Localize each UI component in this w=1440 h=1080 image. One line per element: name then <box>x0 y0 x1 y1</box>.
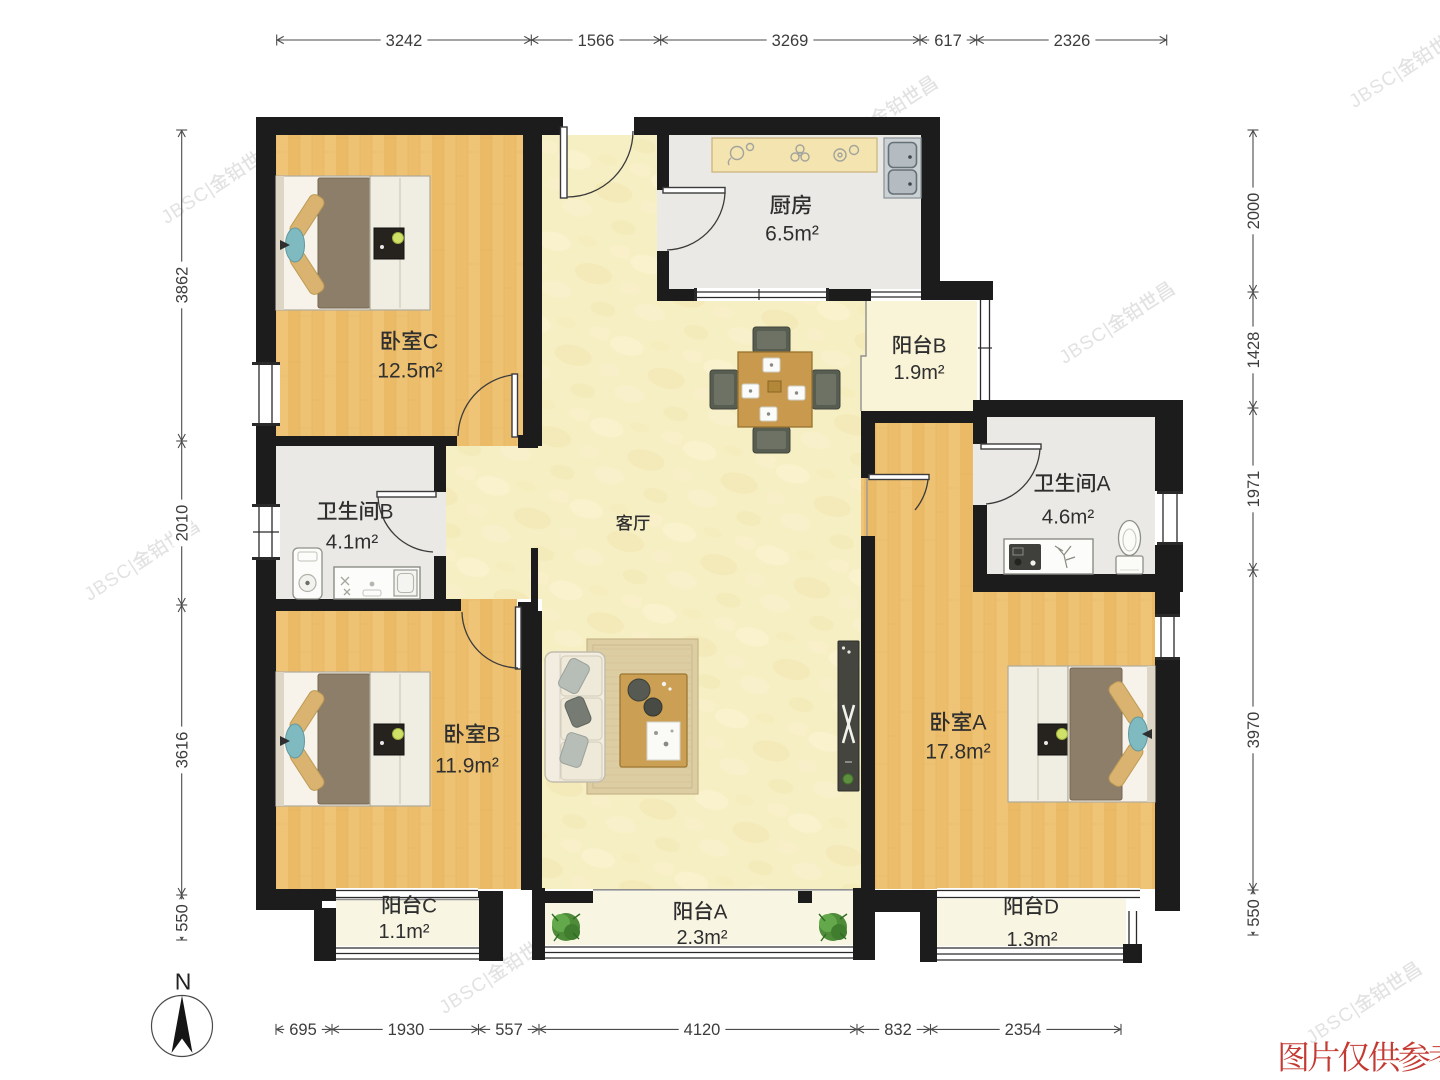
svg-text:B: B <box>380 501 394 524</box>
svg-text:832: 832 <box>884 1021 912 1039</box>
svg-text:1971: 1971 <box>1245 471 1263 508</box>
svg-text:3616: 3616 <box>173 732 191 769</box>
svg-text:N: N <box>175 969 192 995</box>
svg-text:1.3m²: 1.3m² <box>1006 929 1057 951</box>
svg-text:3242: 3242 <box>386 32 423 50</box>
svg-text:695: 695 <box>289 1021 317 1039</box>
svg-text:D: D <box>1044 895 1059 918</box>
svg-text:6.5m²: 6.5m² <box>765 223 819 246</box>
svg-text:17.8m²: 17.8m² <box>925 741 990 764</box>
svg-text:1.1m²: 1.1m² <box>378 921 429 943</box>
svg-text:4.6m²: 4.6m² <box>1042 505 1095 528</box>
svg-text:2000: 2000 <box>1245 193 1263 230</box>
svg-text:550: 550 <box>173 904 191 932</box>
svg-text:2.3m²: 2.3m² <box>676 927 727 949</box>
svg-text:A: A <box>714 900 728 923</box>
svg-text:2326: 2326 <box>1054 32 1091 50</box>
svg-text:A: A <box>1097 473 1111 496</box>
svg-text:617: 617 <box>934 32 962 50</box>
svg-text:3269: 3269 <box>772 32 809 50</box>
svg-text:4.1m²: 4.1m² <box>326 530 379 553</box>
svg-text:3862: 3862 <box>173 267 191 304</box>
svg-text:3970: 3970 <box>1245 712 1263 749</box>
svg-text:2354: 2354 <box>1005 1021 1042 1039</box>
svg-text:1.9m²: 1.9m² <box>893 362 944 384</box>
svg-text:1566: 1566 <box>578 32 615 50</box>
svg-text:1930: 1930 <box>388 1021 425 1039</box>
svg-text:557: 557 <box>495 1021 523 1039</box>
svg-text:11.9m²: 11.9m² <box>435 755 499 778</box>
svg-text:1428: 1428 <box>1245 332 1263 369</box>
svg-text:4120: 4120 <box>684 1021 721 1039</box>
svg-text:12.5m²: 12.5m² <box>377 360 442 383</box>
svg-text:C: C <box>422 894 437 917</box>
svg-text:B: B <box>933 334 947 357</box>
svg-text:B: B <box>486 723 500 747</box>
svg-text:2010: 2010 <box>173 505 191 542</box>
svg-text:550: 550 <box>1245 899 1263 927</box>
svg-text:C: C <box>423 330 439 354</box>
svg-text:A: A <box>972 711 987 735</box>
